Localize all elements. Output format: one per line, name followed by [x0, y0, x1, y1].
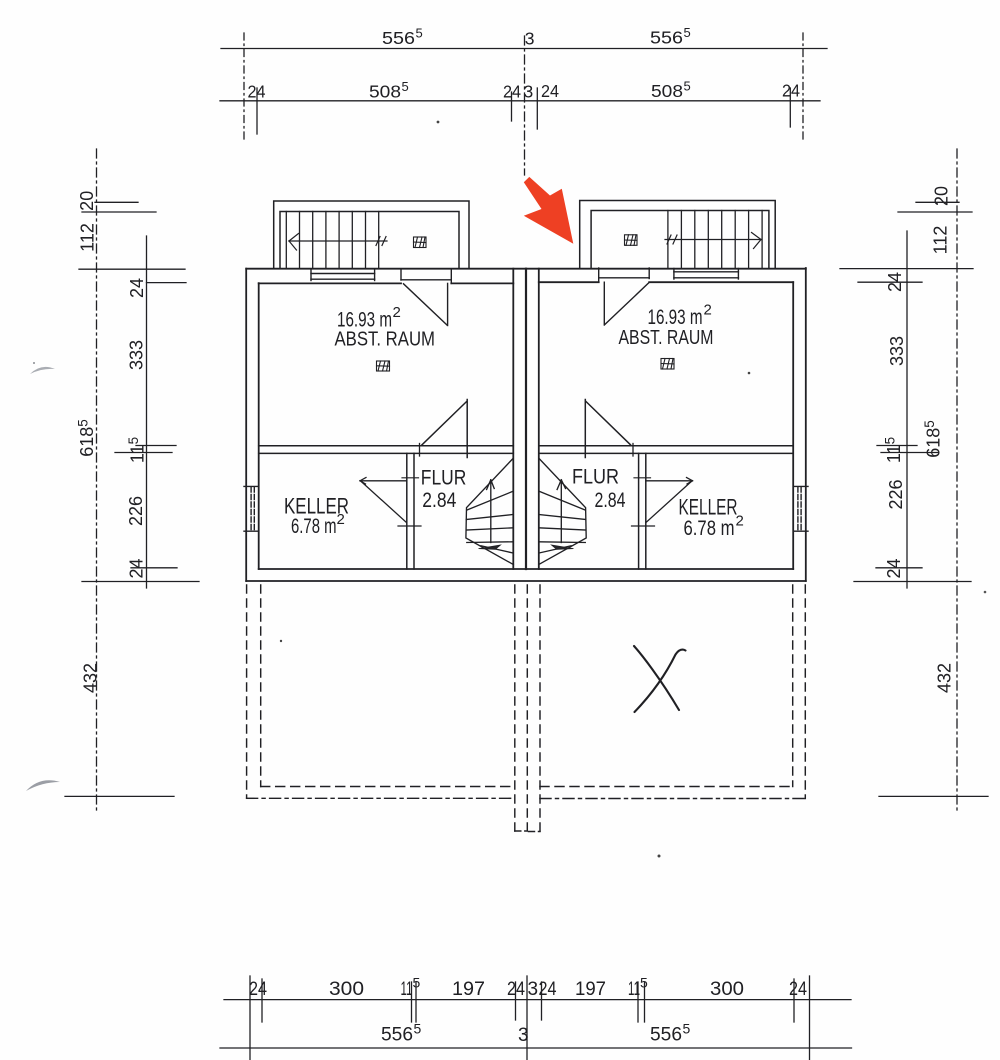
svg-text:3: 3: [518, 1025, 529, 1046]
svg-text:24: 24: [539, 979, 557, 1000]
svg-text:226: 226: [886, 479, 906, 509]
svg-text:300: 300: [329, 979, 364, 1000]
svg-text:20: 20: [932, 186, 952, 206]
svg-text:24: 24: [503, 82, 521, 102]
svg-text:432: 432: [935, 663, 955, 693]
svg-text:333: 333: [127, 340, 147, 370]
svg-text:24: 24: [248, 82, 266, 102]
svg-text:24: 24: [507, 979, 525, 1000]
svg-text:556: 556: [382, 28, 415, 48]
svg-text:3: 3: [525, 29, 535, 49]
svg-text:ABST. RAUM: ABST. RAUM: [619, 326, 714, 349]
svg-text:6.78 m: 6.78 m: [291, 515, 337, 538]
svg-text:197: 197: [452, 979, 485, 1000]
svg-text:5: 5: [402, 79, 409, 94]
svg-text:24: 24: [782, 81, 800, 101]
svg-text:3: 3: [524, 82, 534, 102]
svg-text:FLUR: FLUR: [421, 467, 467, 490]
svg-text:11: 11: [401, 979, 413, 1000]
svg-text:5: 5: [684, 25, 691, 40]
svg-text:556: 556: [650, 1025, 682, 1046]
svg-text:5: 5: [683, 1021, 691, 1037]
svg-text:6.78 m: 6.78 m: [684, 517, 735, 540]
svg-text:432: 432: [81, 663, 101, 693]
svg-text:5: 5: [684, 79, 691, 94]
svg-text:2: 2: [337, 511, 345, 528]
svg-text:508: 508: [369, 82, 401, 102]
svg-text:24: 24: [885, 272, 905, 292]
svg-text:24: 24: [127, 558, 147, 578]
svg-text:5: 5: [416, 26, 423, 41]
svg-text:112: 112: [931, 226, 951, 255]
svg-text:2.84: 2.84: [422, 489, 456, 512]
svg-text:300: 300: [710, 979, 744, 1000]
svg-text:11: 11: [628, 979, 640, 1000]
svg-text:KELLER: KELLER: [679, 495, 738, 520]
svg-text:508: 508: [651, 81, 683, 101]
svg-text:2: 2: [736, 513, 744, 530]
svg-text:24: 24: [789, 979, 807, 1000]
svg-text:197: 197: [575, 979, 606, 1000]
svg-text:20: 20: [77, 191, 97, 211]
svg-text:556: 556: [381, 1025, 413, 1046]
svg-text:5: 5: [640, 975, 648, 991]
svg-text:226: 226: [126, 496, 146, 526]
svg-text:ABST. RAUM: ABST. RAUM: [335, 328, 436, 351]
svg-text:2.84: 2.84: [595, 489, 626, 512]
svg-text:24: 24: [249, 979, 267, 1000]
svg-text:2: 2: [393, 304, 401, 321]
svg-text:5: 5: [414, 1021, 422, 1037]
svg-text:FLUR: FLUR: [572, 466, 619, 489]
svg-text:24: 24: [541, 81, 559, 101]
svg-text:24: 24: [884, 558, 904, 578]
svg-text:5: 5: [413, 975, 421, 991]
svg-text:112: 112: [78, 223, 98, 252]
svg-text:333: 333: [887, 336, 907, 366]
svg-text:556: 556: [650, 28, 683, 48]
svg-text:2: 2: [704, 302, 712, 319]
svg-text:24: 24: [127, 278, 147, 298]
svg-text:3: 3: [528, 979, 539, 1000]
